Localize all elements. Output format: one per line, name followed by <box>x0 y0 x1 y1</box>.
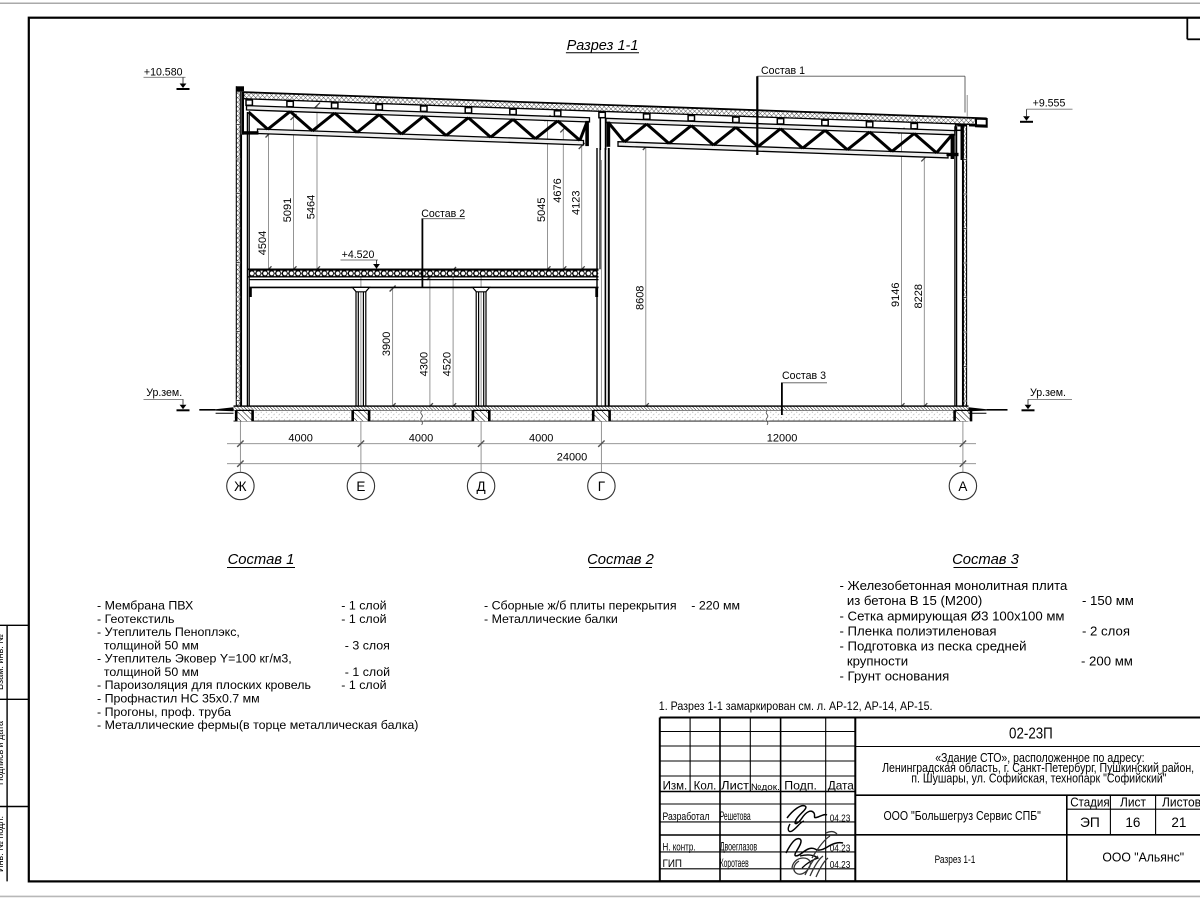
svg-text:- Профнастил НС 35х0.7 мм: - Профнастил НС 35х0.7 мм <box>97 692 260 706</box>
svg-text:- Металлические балки: - Металлические балки <box>484 612 618 626</box>
svg-text:Состав 1: Состав 1 <box>761 65 805 77</box>
svg-text:- 1 слой: - 1 слой <box>345 665 390 679</box>
svg-text:4123: 4123 <box>570 190 582 214</box>
svg-text:- Утеплитель Эковер Y=100 кг/м: - Утеплитель Эковер Y=100 кг/м3, <box>97 652 292 666</box>
svg-text:5464: 5464 <box>306 195 318 219</box>
svg-text:5045: 5045 <box>536 197 548 221</box>
svg-text:- Геотекстиль: - Геотекстиль <box>97 612 174 626</box>
svg-text:Д: Д <box>477 479 486 494</box>
svg-text:Двоеглазов: Двоеглазов <box>720 841 758 853</box>
svg-text:Состав 2: Состав 2 <box>421 208 465 220</box>
svg-text:3900: 3900 <box>381 332 393 356</box>
svg-text:А: А <box>958 479 967 494</box>
svg-text:- 150 мм: - 150 мм <box>1082 593 1134 608</box>
svg-text:4520: 4520 <box>442 352 454 376</box>
svg-text:Разрез 1-1: Разрез 1-1 <box>567 38 639 54</box>
svg-text:Разработал: Разработал <box>663 811 710 823</box>
svg-text:толщиной 50 мм: толщиной 50 мм <box>97 638 199 652</box>
svg-text:- Прогоны, проф. труба: - Прогоны, проф. труба <box>97 705 231 719</box>
svg-text:Ж: Ж <box>234 479 247 494</box>
svg-text:16: 16 <box>1125 815 1140 830</box>
svg-text:24000: 24000 <box>557 451 588 463</box>
svg-text:4676: 4676 <box>552 178 564 202</box>
svg-text:Взам. инв. №: Взам. инв. № <box>0 634 6 690</box>
svg-text:ООО "Альянс": ООО "Альянс" <box>1102 850 1184 865</box>
svg-text:8608: 8608 <box>634 286 646 310</box>
svg-text:- 200 мм: - 200 мм <box>1081 654 1133 669</box>
svg-text:- Сборные ж/б плиты перекрытия: - Сборные ж/б плиты перекрытия <box>484 599 677 613</box>
svg-text:- 220 мм: - 220 мм <box>691 599 740 613</box>
svg-text:- 1 слой: - 1 слой <box>341 612 386 626</box>
svg-text:04.23: 04.23 <box>830 813 851 825</box>
svg-text:из бетона В 15 (М200): из бетона В 15 (М200) <box>840 593 983 608</box>
svg-text:Разрез 1-1: Разрез 1-1 <box>935 854 976 866</box>
svg-text:02-23П: 02-23П <box>1009 725 1053 742</box>
svg-text:04.23: 04.23 <box>830 859 851 871</box>
svg-text:Решетова: Решетова <box>720 811 751 823</box>
svg-text:21: 21 <box>1171 815 1186 830</box>
svg-text:Н. контр.: Н. контр. <box>663 841 696 853</box>
svg-text:- Подготовка из песка средней: - Подготовка из песка средней <box>840 639 1027 654</box>
svg-text:Инв. № подл.: Инв. № подл. <box>0 816 6 872</box>
svg-text:Стадия: Стадия <box>1070 795 1109 810</box>
svg-text:12000: 12000 <box>767 433 798 445</box>
svg-text:№док.: №док. <box>751 782 780 792</box>
svg-text:4000: 4000 <box>288 433 312 445</box>
svg-text:4000: 4000 <box>529 433 553 445</box>
svg-text:- Пароизоляция для плоских кро: - Пароизоляция для плоских кровель <box>97 678 311 692</box>
svg-text:5091: 5091 <box>282 198 294 222</box>
svg-text:Подпись и дата: Подпись и дата <box>0 721 6 785</box>
svg-text:Дата: Дата <box>828 779 855 793</box>
svg-text:- 1 слой: - 1 слой <box>341 678 386 692</box>
svg-text:4000: 4000 <box>409 433 433 445</box>
svg-text:Коротаев: Коротаев <box>720 858 749 870</box>
svg-text:+4.520: +4.520 <box>342 249 375 261</box>
svg-text:толщиной 50 мм: толщиной 50 мм <box>97 665 199 679</box>
svg-text:ЭП: ЭП <box>1080 815 1100 830</box>
svg-text:4504: 4504 <box>257 231 269 255</box>
svg-text:- Металлические фермы(в торце: - Металлические фермы(в торце металличес… <box>97 718 418 732</box>
svg-text:- Утеплитель Пеноплэкс,: - Утеплитель Пеноплэкс, <box>97 625 240 639</box>
svg-text:Кол.: Кол. <box>694 781 717 793</box>
svg-text:- Железобетонная монолитная п: - Железобетонная монолитная плита <box>840 578 1069 593</box>
svg-text:- 3 слоя: - 3 слоя <box>345 638 390 652</box>
svg-text:- 1 слой: - 1 слой <box>341 599 386 613</box>
svg-text:ГИП: ГИП <box>663 858 683 870</box>
svg-text:Г: Г <box>598 479 606 494</box>
svg-text:+10.580: +10.580 <box>144 67 183 79</box>
svg-text:9146: 9146 <box>890 282 902 306</box>
svg-text:Лист: Лист <box>721 779 750 793</box>
svg-text:Состав 1: Состав 1 <box>228 552 295 568</box>
svg-text:Состав 3: Состав 3 <box>952 552 1020 568</box>
svg-text:- Мембрана ПВХ: - Мембрана ПВХ <box>97 599 193 613</box>
svg-text:- 2 слоя: - 2 слоя <box>1082 623 1130 638</box>
svg-text:- Пленка полиэтиленовая: - Пленка полиэтиленовая <box>840 623 997 638</box>
svg-text:4300: 4300 <box>419 352 431 376</box>
svg-text:крупности: крупности <box>840 654 909 669</box>
svg-text:Состав 3: Состав 3 <box>782 370 826 382</box>
svg-text:Ур.зем.: Ур.зем. <box>146 387 182 399</box>
svg-text:Изм.: Изм. <box>663 781 688 793</box>
svg-text:п. Шушары, ул. Софийская, техн: п. Шушары, ул. Софийская, технопарк "Соф… <box>911 770 1167 785</box>
svg-text:Листов: Листов <box>1162 795 1200 810</box>
svg-text:Е: Е <box>356 479 365 494</box>
svg-text:Состав 2: Состав 2 <box>587 552 655 568</box>
svg-text:- Сетка армирующая Ø3 100х100: - Сетка армирующая Ø3 100х100 мм <box>840 608 1065 623</box>
svg-text:1. Разрез 1-1 замаркирован см.: 1. Разрез 1-1 замаркирован см. л. АР-12,… <box>659 699 933 713</box>
svg-text:Лист: Лист <box>1120 795 1146 810</box>
svg-text:ООО "Большегруз Сервис СПБ": ООО "Большегруз Сервис СПБ" <box>883 809 1041 823</box>
svg-text:Ур.зем.: Ур.зем. <box>1030 387 1066 399</box>
svg-text:8228: 8228 <box>913 284 925 308</box>
svg-text:+9.555: +9.555 <box>1033 98 1066 110</box>
svg-text:Подп.: Подп. <box>784 779 817 793</box>
svg-text:- Грунт основания: - Грунт основания <box>840 669 950 684</box>
